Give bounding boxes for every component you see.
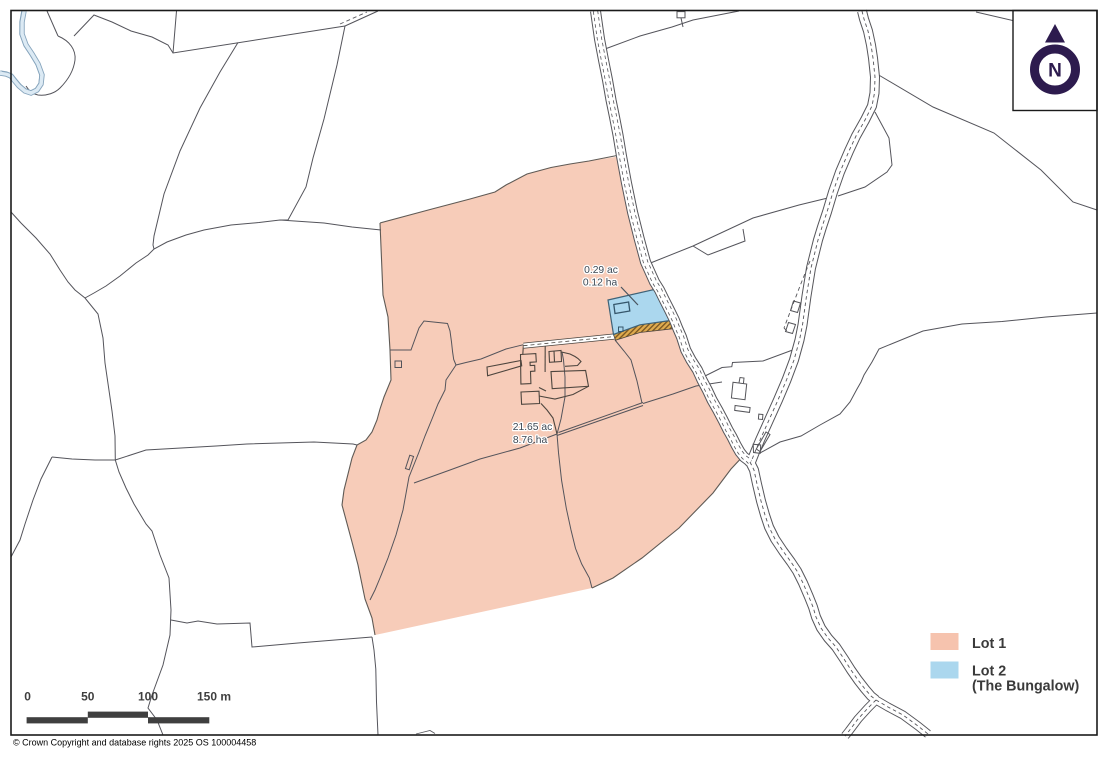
svg-text:150 m: 150 m xyxy=(197,690,231,704)
svg-text:© Crown Copyright and database: © Crown Copyright and database rights 20… xyxy=(13,738,256,748)
svg-text:100: 100 xyxy=(138,690,158,704)
svg-text:0.29 ac: 0.29 ac xyxy=(584,265,618,276)
svg-text:N: N xyxy=(1048,61,1062,82)
svg-text:Lot 2: Lot 2 xyxy=(972,664,1006,680)
svg-text:0.12 ha: 0.12 ha xyxy=(583,278,618,289)
svg-text:50: 50 xyxy=(81,690,95,704)
svg-text:(The Bungalow): (The Bungalow) xyxy=(972,679,1079,695)
svg-text:Lot 1: Lot 1 xyxy=(972,636,1006,652)
svg-text:8.76 ha: 8.76 ha xyxy=(513,435,548,446)
svg-text:0: 0 xyxy=(24,690,31,704)
svg-text:21.65 ac: 21.65 ac xyxy=(513,422,553,433)
